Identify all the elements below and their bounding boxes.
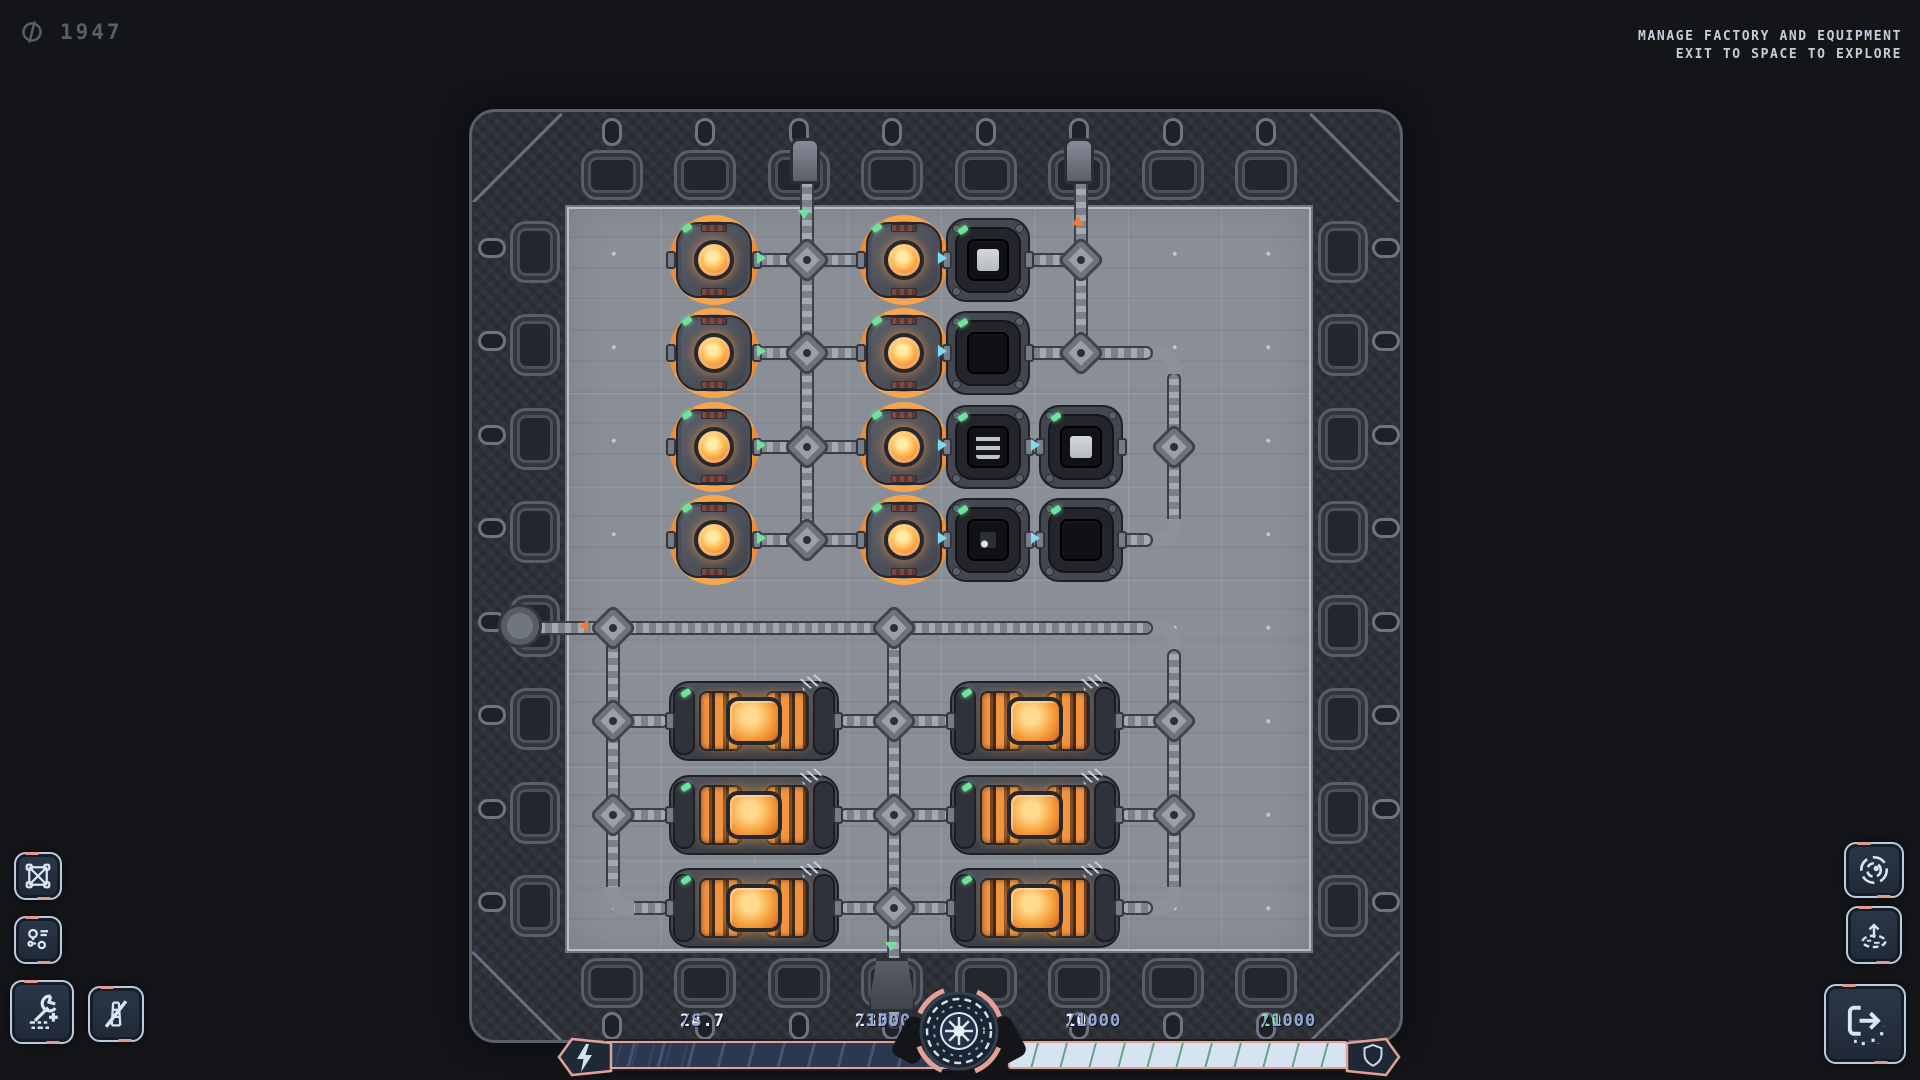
- generator-machine[interactable]: [862, 498, 946, 582]
- hull-denom: /1000: [1065, 1011, 1121, 1031]
- gen-core-part: [694, 240, 734, 280]
- generator-machine[interactable]: [862, 311, 946, 395]
- pipe-junction: [870, 604, 918, 652]
- energy-rate-label: 24.7/S: [605, 1011, 755, 1033]
- bolt: [1015, 380, 1024, 389]
- coil-machine[interactable]: [950, 868, 1120, 948]
- gen-core-part: [884, 520, 924, 560]
- pipe: [1167, 649, 1181, 896]
- wall-rivet: [478, 799, 506, 819]
- sideport-part: [946, 806, 956, 824]
- exit-to-space-button[interactable]: [1824, 984, 1906, 1064]
- factory-floor[interactable]: [565, 205, 1313, 953]
- sideport-part: [1114, 806, 1124, 824]
- storage-machine[interactable]: [1039, 405, 1123, 489]
- pipe-junction: [1150, 697, 1198, 745]
- coil-core-part: [1007, 884, 1063, 932]
- terrain-raise-icon: [1857, 918, 1891, 952]
- coil-machine[interactable]: [950, 775, 1120, 855]
- shield-label: 1000/1000: [1190, 1011, 1330, 1033]
- wall-socket: [1235, 150, 1297, 200]
- orbit-view-button[interactable]: [1844, 842, 1904, 898]
- generator-machine[interactable]: [672, 311, 756, 395]
- storage-machine[interactable]: [1039, 498, 1123, 582]
- wall-socket: [510, 221, 560, 283]
- gen-core-part: [694, 520, 734, 560]
- storage-machine[interactable]: [946, 498, 1030, 582]
- vent-part: [701, 224, 727, 232]
- pipe-junction: [783, 516, 831, 564]
- bolt: [1015, 287, 1024, 296]
- wall-rivet: [1372, 331, 1400, 351]
- wall-rivet: [1372, 612, 1400, 632]
- wall-socket: [1318, 782, 1368, 844]
- sideport-part: [833, 712, 843, 730]
- vent-part: [891, 504, 917, 512]
- wall-socket: [1318, 408, 1368, 470]
- generator-machine[interactable]: [672, 498, 756, 582]
- pipe-corner: [1153, 887, 1181, 915]
- wall-socket: [1318, 875, 1368, 937]
- vent-part: [891, 317, 917, 325]
- gen-core-part: [884, 427, 924, 467]
- bolt: [952, 567, 961, 576]
- hint-text: MANAGE FACTORY AND EQUIPMENT EXIT TO SPA…: [1342, 28, 1902, 64]
- flow-arrow-cyan: [1031, 532, 1046, 544]
- wall-socket: [861, 150, 923, 200]
- capR-part: [813, 687, 835, 755]
- sideport-part: [856, 344, 866, 362]
- crate-button[interactable]: [14, 852, 62, 900]
- exit-to-space-icon: [1839, 998, 1891, 1050]
- generator-machine[interactable]: [672, 405, 756, 489]
- wall-rivet: [695, 118, 715, 146]
- flow-arrow-cyan: [938, 252, 953, 264]
- game-viewport[interactable]: 1947 MANAGE FACTORY AND EQUIPMENT EXIT T…: [0, 0, 1920, 1080]
- coil-machine[interactable]: [669, 775, 839, 855]
- wall-socket: [768, 958, 830, 1008]
- flow-arrow-orange: [573, 620, 588, 632]
- sideport: [1024, 251, 1034, 269]
- sideport-part: [665, 806, 675, 824]
- reactor-gauge: [909, 984, 1009, 1078]
- wall-rivet: [1163, 118, 1183, 146]
- vent-part: [891, 411, 917, 419]
- pipe: [1120, 901, 1153, 915]
- sideport: [1024, 344, 1034, 362]
- sideport-part: [666, 344, 676, 362]
- wall-rivet: [1372, 238, 1400, 258]
- logistics-button[interactable]: [14, 916, 62, 964]
- coil-core-part: [726, 791, 782, 839]
- bolt: [1015, 317, 1024, 326]
- bolt: [1108, 474, 1117, 483]
- lightning-icon: [577, 1044, 592, 1072]
- gen-core-part: [884, 240, 924, 280]
- sideport-part: [665, 899, 675, 917]
- shield-icon: [1365, 1045, 1382, 1066]
- wall-port-top: [790, 138, 820, 184]
- storage-machine[interactable]: [946, 405, 1030, 489]
- sideport-part: [856, 438, 866, 456]
- vent-part: [701, 568, 727, 576]
- bolt: [1108, 567, 1117, 576]
- pipe-junction: [1150, 791, 1198, 839]
- sideport-part: [946, 712, 956, 730]
- bolt: [1045, 474, 1054, 483]
- currency-display: 1947: [20, 16, 240, 48]
- pipe-corner: [606, 887, 634, 915]
- wall-rivet: [976, 118, 996, 146]
- wall-socket: [1318, 314, 1368, 376]
- build-wrench-icon: [21, 991, 63, 1033]
- flow-arrow-orange: [1072, 210, 1084, 225]
- orbit-icon: [1856, 852, 1892, 888]
- bolt: [1015, 567, 1024, 576]
- bolt: [1015, 474, 1024, 483]
- storage-core: [967, 426, 1009, 468]
- wall-socket: [1318, 501, 1368, 563]
- bolt: [1015, 224, 1024, 233]
- wall-socket: [581, 150, 643, 200]
- pipe-junction: [589, 697, 637, 745]
- flow-arrow-cyan: [1031, 439, 1046, 451]
- wall-rivet: [602, 118, 622, 146]
- flow-arrow-green: [798, 210, 810, 225]
- wall-socket: [510, 782, 560, 844]
- pipe-junction: [1057, 329, 1105, 377]
- hint-line-1: MANAGE FACTORY AND EQUIPMENT: [1342, 28, 1902, 46]
- wall-rivet: [478, 518, 506, 538]
- bolt: [1108, 411, 1117, 420]
- factory-station: [469, 109, 1403, 1043]
- wall-socket: [1142, 958, 1204, 1008]
- storage-core: [967, 519, 1009, 561]
- coil-core-part: [1007, 791, 1063, 839]
- wall-socket: [510, 688, 560, 750]
- wall-socket: [581, 958, 643, 1008]
- pipe-junction: [870, 697, 918, 745]
- sideport-part: [666, 531, 676, 549]
- vent-part: [891, 288, 917, 296]
- wall-rivet: [1256, 118, 1276, 146]
- build-button[interactable]: [10, 980, 74, 1044]
- sideport-part: [856, 251, 866, 269]
- flow-arrow-green: [757, 345, 772, 357]
- wall-socket: [674, 958, 736, 1008]
- storage-machine[interactable]: [946, 218, 1030, 302]
- sideport-part: [666, 251, 676, 269]
- gen-core-part: [884, 333, 924, 373]
- pipe-junction: [783, 423, 831, 471]
- coil-machine[interactable]: [669, 868, 839, 948]
- pipe-corner: [1153, 346, 1181, 374]
- pipe: [606, 628, 620, 894]
- wall-port-left: [498, 604, 542, 648]
- storage-core: [967, 332, 1009, 374]
- generator-machine[interactable]: [862, 405, 946, 489]
- shield-bar: [1008, 1041, 1348, 1069]
- sideport-part: [833, 806, 843, 824]
- generator-machine[interactable]: [862, 218, 946, 302]
- sideport-part: [946, 899, 956, 917]
- wall-socket: [1318, 595, 1368, 657]
- coil-core-part: [726, 697, 782, 745]
- wall-port-top: [1064, 138, 1094, 184]
- capR-part: [813, 874, 835, 942]
- wall-rivet: [478, 892, 506, 912]
- gen-core-part: [694, 333, 734, 373]
- bolt: [1045, 567, 1054, 576]
- storage-machine[interactable]: [946, 311, 1030, 395]
- pipe-corner: [1153, 519, 1181, 547]
- flow-arrow-green: [757, 532, 772, 544]
- sideport-part: [665, 712, 675, 730]
- pipe-junction: [589, 791, 637, 839]
- wall-rivet: [1163, 1012, 1183, 1040]
- flow-arrow-cyan: [938, 345, 953, 357]
- bolt: [1015, 504, 1024, 513]
- pipe-junction: [783, 236, 831, 284]
- flow-arrow-cyan: [938, 439, 953, 451]
- wall-socket: [674, 150, 736, 200]
- demolish-button[interactable]: [88, 986, 144, 1042]
- sideport-part: [666, 438, 676, 456]
- wall-socket: [1318, 221, 1368, 283]
- coil-machine[interactable]: [950, 681, 1120, 761]
- pipe-junction: [870, 884, 918, 932]
- sideport-part: [1114, 899, 1124, 917]
- sideport-part: [833, 899, 843, 917]
- pipe-junction: [870, 791, 918, 839]
- vent-part: [701, 288, 727, 296]
- energy-bar-fill: [606, 1043, 688, 1067]
- wall-rivet: [1372, 425, 1400, 445]
- vent-part: [701, 475, 727, 483]
- vent-part: [891, 568, 917, 576]
- wall-socket: [1235, 958, 1297, 1008]
- bolt: [1108, 504, 1117, 513]
- flow-arrow-green: [885, 942, 897, 957]
- energy-rate-denom: /S: [680, 1011, 702, 1031]
- shield-denom: /1000: [1260, 1011, 1316, 1031]
- wall-rivet: [1372, 705, 1400, 725]
- terrain-button[interactable]: [1846, 906, 1902, 964]
- coil-core-part: [726, 884, 782, 932]
- wall-socket: [955, 150, 1017, 200]
- bolt: [952, 287, 961, 296]
- flow-arrow-cyan: [938, 532, 953, 544]
- capR-part: [1094, 781, 1116, 849]
- wall-socket: [510, 314, 560, 376]
- vent-part: [701, 381, 727, 389]
- wall-socket: [1048, 958, 1110, 1008]
- wall-rivet: [882, 118, 902, 146]
- wall-rivet: [478, 331, 506, 351]
- pipe-junction: [1057, 236, 1105, 284]
- capR-part: [813, 781, 835, 849]
- capR-part: [1094, 874, 1116, 942]
- wall-rivet: [478, 238, 506, 258]
- sideport-part: [1114, 712, 1124, 730]
- pipe-junction: [783, 329, 831, 377]
- pipe-corner: [1153, 621, 1181, 649]
- vent-part: [891, 475, 917, 483]
- storage-core: [967, 239, 1009, 281]
- vent-part: [701, 504, 727, 512]
- currency-value: 1947: [60, 20, 123, 44]
- gen-core-part: [694, 427, 734, 467]
- flow-arrow-green: [757, 252, 772, 264]
- sideport: [1117, 531, 1127, 549]
- bolt: [1015, 411, 1024, 420]
- wall-socket: [510, 501, 560, 563]
- bolt: [952, 380, 961, 389]
- wall-rivet: [478, 425, 506, 445]
- pipe-junction: [589, 604, 637, 652]
- wall-rivet: [1372, 799, 1400, 819]
- wall-rivet: [1372, 518, 1400, 538]
- coil-machine[interactable]: [669, 681, 839, 761]
- wall-socket: [510, 875, 560, 937]
- flow-arrow-green: [757, 439, 772, 451]
- wall-rivet: [1372, 892, 1400, 912]
- storage-core: [1060, 519, 1102, 561]
- hint-line-2: EXIT TO SPACE TO EXPLORE: [1342, 46, 1902, 64]
- vent-part: [701, 317, 727, 325]
- storage-core: [1060, 426, 1102, 468]
- vent-part: [701, 411, 727, 419]
- pipe-junction: [1150, 423, 1198, 471]
- capR-part: [1094, 687, 1116, 755]
- wall-socket: [1318, 688, 1368, 750]
- crate-icon: [23, 861, 53, 891]
- demolish-icon: [99, 997, 133, 1031]
- wall-rivet: [478, 705, 506, 725]
- vent-part: [891, 381, 917, 389]
- generator-machine[interactable]: [672, 218, 756, 302]
- bolt: [952, 474, 961, 483]
- coil-core-part: [1007, 697, 1063, 745]
- wall-socket: [510, 408, 560, 470]
- sideport-part: [856, 531, 866, 549]
- logistics-icon: [23, 925, 53, 955]
- sideport: [1117, 438, 1127, 456]
- credits-icon: [20, 20, 44, 44]
- wall-socket: [1142, 150, 1204, 200]
- vent-part: [891, 224, 917, 232]
